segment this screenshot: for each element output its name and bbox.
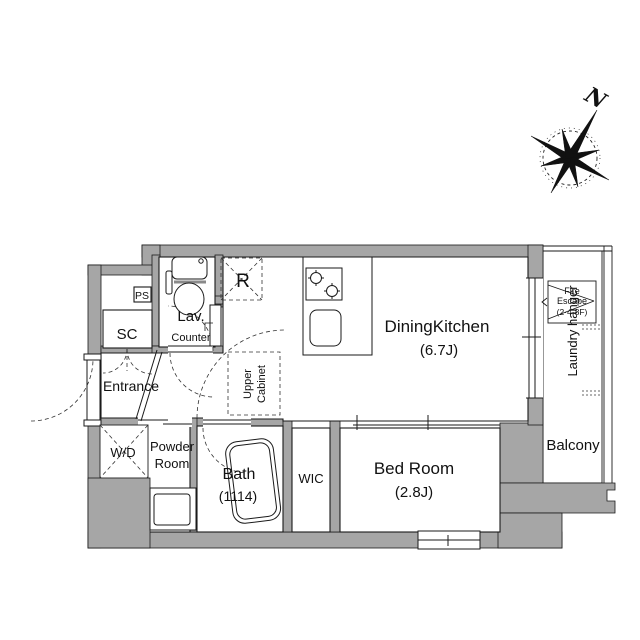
room-label-dining-kitchen: DiningKitchen bbox=[385, 317, 490, 336]
sink-icon bbox=[310, 310, 341, 346]
kitchen-unit bbox=[303, 257, 372, 355]
label-ps: PS bbox=[135, 290, 149, 302]
room-label-entrance: Entrance bbox=[103, 378, 159, 394]
room-label-powder-1: Powder bbox=[150, 439, 195, 454]
wall-segment bbox=[498, 513, 562, 548]
wall-segment bbox=[500, 423, 543, 483]
room-size-dining-kitchen: (6.7J) bbox=[420, 342, 458, 359]
wall-segment bbox=[330, 420, 340, 532]
wall-segment bbox=[88, 478, 150, 548]
room-size-bath: (1114) bbox=[219, 488, 257, 504]
label-sc: SC bbox=[117, 326, 138, 343]
label-washer-dryer: W/D bbox=[110, 445, 135, 460]
wall-segment bbox=[283, 418, 292, 532]
room-label-bedroom: Bed Room bbox=[374, 459, 454, 478]
vanity-icon bbox=[150, 488, 196, 530]
bedroom-window bbox=[418, 531, 480, 549]
room-size-bedroom: (2.8J) bbox=[395, 484, 433, 501]
room-label-balcony: Balcony bbox=[546, 437, 600, 454]
wall-segment bbox=[88, 265, 101, 360]
room-label-wic: WIC bbox=[298, 471, 323, 486]
compass-rose: N bbox=[531, 82, 611, 193]
label-laundry-hanger: Laundry hanger bbox=[565, 285, 580, 377]
room-bedroom-floor bbox=[340, 428, 500, 532]
room-label-bath: Bath bbox=[223, 466, 256, 483]
label-counter: Counter bbox=[171, 332, 210, 344]
label-upper-cabinet-2: Cabinet bbox=[256, 365, 268, 403]
wall-segment bbox=[498, 483, 615, 513]
wall-segment bbox=[528, 245, 543, 278]
front-door-opening bbox=[86, 360, 100, 420]
wall-segment bbox=[142, 245, 543, 257]
label-refrigerator: R bbox=[236, 271, 250, 292]
wall-segment bbox=[528, 398, 543, 425]
floor-plan-page: N DiningKitchen (6.7J) Bed Room (2.8J) B… bbox=[0, 0, 640, 640]
room-label-lavatory: Lav. bbox=[177, 308, 204, 325]
front-door-hinge bbox=[84, 420, 101, 426]
compass-north-label: N bbox=[579, 82, 611, 116]
room-label-powder-2: Room bbox=[155, 456, 190, 471]
stove-icon bbox=[306, 268, 342, 300]
label-upper-cabinet-1: Upper bbox=[242, 369, 254, 399]
front-door-hinge bbox=[84, 354, 101, 360]
bath-door bbox=[203, 417, 251, 427]
floor-plan-drawing: N DiningKitchen (6.7J) Bed Room (2.8J) B… bbox=[0, 0, 640, 640]
